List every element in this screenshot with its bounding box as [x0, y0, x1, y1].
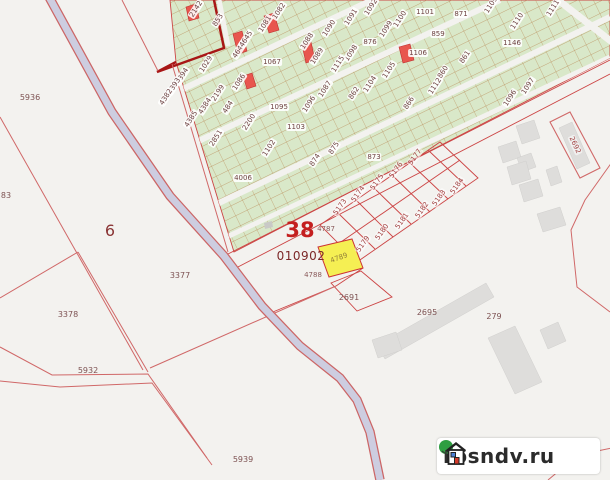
rosndv-logo-icon: [437, 438, 469, 468]
highlighted-parcel[interactable]: [318, 239, 363, 277]
map-viewport[interactable]: 2142853108210811090109110921088108910981…: [0, 0, 610, 480]
site-watermark[interactable]: rosndv.ru: [437, 438, 600, 474]
map-canvas: [0, 0, 610, 480]
